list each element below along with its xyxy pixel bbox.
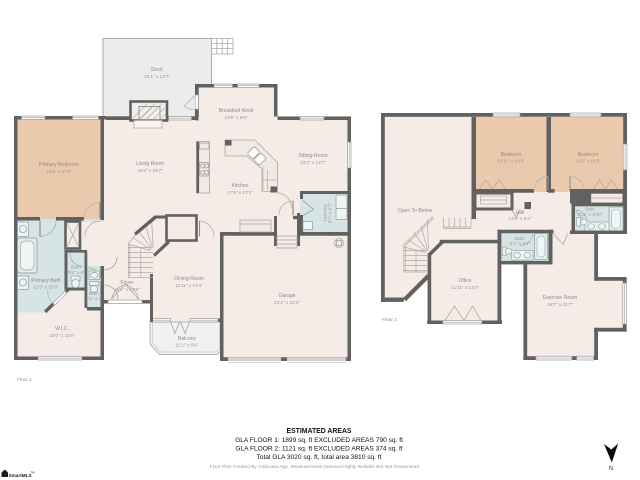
svg-text:Floor 2: Floor 2: [382, 317, 397, 323]
svg-text:8'0" x 6'7": 8'0" x 6'7": [328, 202, 333, 223]
svg-text:Foyer: Foyer: [120, 280, 133, 286]
svg-text:Breakfast Nook: Breakfast Nook: [219, 108, 254, 114]
svg-text:Primary Bath: Primary Bath: [31, 278, 61, 284]
svg-text:GLA FLOOR 1: 1899 sq. ft EXCLU: GLA FLOOR 1: 1899 sq. ft EXCLUDED AREAS …: [235, 437, 403, 444]
svg-text:Balcony: Balcony: [178, 336, 197, 342]
svg-text:Open To Below: Open To Below: [398, 208, 433, 214]
svg-text:Sitting Room: Sitting Room: [298, 153, 327, 159]
svg-text:Floor 1: Floor 1: [17, 377, 32, 383]
svg-text:Kitchen: Kitchen: [232, 183, 249, 189]
svg-text:Dining Room: Dining Room: [174, 276, 203, 282]
svg-text:3'6" x 6': 3'6" x 6': [68, 270, 84, 275]
svg-text:ESTIMATED AREAS: ESTIMATED AREAS: [286, 428, 351, 435]
svg-text:Floor Plan Created By Cubicasa: Floor Plan Created By Cubicasa App. Meas…: [210, 464, 421, 470]
svg-text:17'6" x 17'1": 17'6" x 17'1": [227, 190, 253, 195]
svg-text:Bath: Bath: [71, 265, 81, 270]
svg-text:Bedroom: Bedroom: [501, 152, 522, 158]
svg-text:Exercise Room: Exercise Room: [543, 295, 578, 301]
svg-text:Bath: Bath: [89, 291, 99, 296]
svg-text:8'11" x 4'10": 8'11" x 4'10": [577, 212, 603, 217]
svg-text:15'6" x 17'2": 15'6" x 17'2": [46, 169, 72, 174]
svg-text:12'8" x 14'3": 12'8" x 14'3": [575, 159, 601, 164]
svg-text:SmartMLS: SmartMLS: [9, 473, 32, 478]
svg-text:12'1" x 6'6": 12'1" x 6'6": [175, 343, 198, 348]
svg-text:12'2" x 12'7": 12'2" x 12'7": [300, 160, 326, 165]
svg-text:7'6" x 7': 7'6" x 7': [86, 297, 102, 302]
svg-text:16'1" x 13'7": 16'1" x 13'7": [144, 74, 170, 79]
svg-text:N: N: [609, 466, 613, 472]
svg-text:GLA FLOOR 2: 1121 sq. ft EXCLU: GLA FLOOR 2: 1121 sq. ft EXCLUDED AREAS …: [235, 446, 403, 453]
svg-text:Total GLA 3020 sq. ft, total a: Total GLA 3020 sq. ft, total area 3810 s…: [257, 454, 382, 461]
svg-text:Garage: Garage: [279, 293, 296, 299]
svg-text:Bedroom: Bedroom: [578, 152, 599, 158]
svg-text:11'1" x 14'8": 11'1" x 14'8": [114, 287, 140, 292]
svg-text:Living Room: Living Room: [136, 161, 164, 167]
svg-text:13'11" x 14'3": 13'11" x 14'3": [497, 159, 525, 164]
svg-text:Office: Office: [458, 278, 471, 284]
svg-text:Deck: Deck: [151, 67, 163, 73]
svg-text:11'11" x 13'4": 11'11" x 13'4": [451, 285, 479, 290]
svg-text:15'0" x 11'6": 15'0" x 11'6": [49, 333, 75, 338]
svg-text:15'7" x 21'7": 15'7" x 21'7": [547, 302, 573, 307]
svg-text:21'1" x 21'4": 21'1" x 21'4": [274, 300, 300, 305]
svg-text:15'9" x 16'7": 15'9" x 16'7": [137, 168, 163, 173]
svg-text:14'9" x 5'2": 14'9" x 5'2": [508, 216, 531, 221]
svg-text:13'8" x 9'6": 13'8" x 9'6": [224, 115, 247, 120]
svg-text:11'3" x 15'9": 11'3" x 15'9": [33, 285, 59, 290]
svg-text:8'2" x 5'1": 8'2" x 5'1": [510, 241, 531, 246]
svg-text:TM: TM: [31, 471, 36, 475]
svg-text:11'11" x 13'4": 11'11" x 13'4": [175, 283, 203, 288]
svg-text:W.I.C.: W.I.C.: [55, 326, 69, 332]
svg-text:Primary Bedroom: Primary Bedroom: [39, 162, 79, 168]
svg-text:Bath: Bath: [585, 207, 595, 212]
